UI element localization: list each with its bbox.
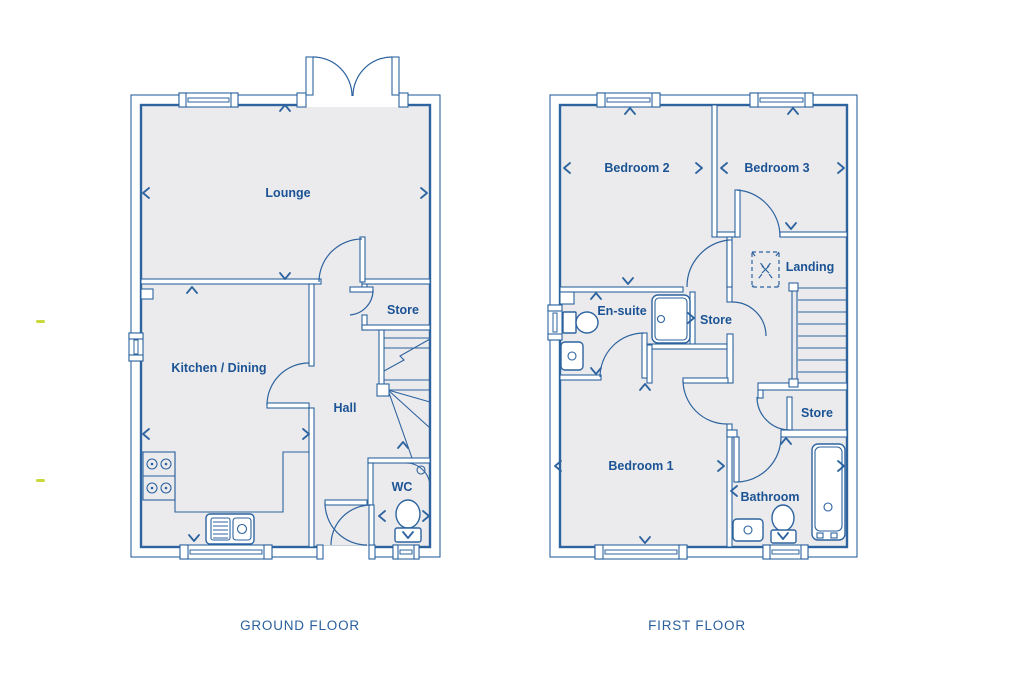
basin-icon	[561, 342, 583, 370]
window	[180, 545, 272, 559]
room-label-wc: WC	[392, 480, 413, 494]
shower-icon	[652, 295, 690, 343]
accent-dash	[36, 320, 45, 323]
wall	[780, 232, 847, 237]
window	[595, 545, 687, 559]
wall	[648, 344, 733, 349]
room-label-bathroom: Bathroom	[740, 490, 799, 504]
wall	[379, 330, 384, 388]
wall	[758, 383, 847, 390]
wall	[712, 105, 717, 237]
window	[179, 93, 238, 107]
room-label-store-ground: Store	[387, 303, 419, 317]
wall	[727, 334, 733, 383]
room-label-landing: Landing	[786, 260, 835, 274]
wall	[309, 284, 314, 366]
window	[129, 333, 143, 361]
wall	[560, 287, 683, 292]
wall	[362, 279, 430, 284]
french-doors-icon	[297, 57, 408, 107]
room-label-store-right: Store	[801, 406, 833, 420]
wall	[727, 424, 732, 547]
room-label-en-suite: En-suite	[597, 304, 646, 318]
first-floor-plan: Bedroom 2 Bedroom 3 Landing En-suite Sto…	[548, 93, 857, 559]
accent-dash	[36, 479, 45, 482]
wall	[368, 458, 430, 463]
wall	[141, 289, 153, 299]
wall	[141, 279, 321, 284]
room-label-bedroom2: Bedroom 2	[604, 161, 669, 175]
wall	[362, 325, 430, 330]
ground-floor-plan: Lounge Kitchen / Dining Hall Store WC	[129, 57, 440, 559]
wall	[368, 463, 373, 505]
ground-floor-title: GROUND FLOOR	[240, 618, 360, 633]
toilet-icon	[395, 500, 421, 542]
room-label-kitchen-dining: Kitchen / Dining	[171, 361, 266, 375]
wall	[717, 232, 737, 237]
window	[763, 545, 808, 559]
wall	[560, 292, 574, 304]
window	[750, 93, 813, 107]
first-floor-title: FIRST FLOOR	[648, 618, 746, 633]
basin-icon	[733, 519, 763, 541]
wall	[781, 430, 847, 437]
bath-icon	[812, 444, 845, 540]
wall	[727, 430, 737, 437]
window	[597, 93, 660, 107]
room-label-store-middle: Store	[700, 313, 732, 327]
toilet-icon	[563, 312, 598, 333]
floorplan-drawing: Lounge Kitchen / Dining Hall Store WC	[0, 0, 1024, 683]
window	[393, 545, 419, 559]
room-label-lounge: Lounge	[265, 186, 310, 200]
room-label-hall: Hall	[334, 401, 357, 415]
wall	[309, 408, 314, 547]
room-label-bedroom3: Bedroom 3	[744, 161, 809, 175]
floorplan-page: Lounge Kitchen / Dining Hall Store WC	[0, 0, 1024, 683]
window	[548, 305, 562, 340]
wall	[647, 345, 652, 383]
wall	[758, 390, 763, 398]
wall	[560, 375, 601, 380]
room-label-bedroom1: Bedroom 1	[608, 459, 673, 473]
sink-icon	[206, 514, 254, 544]
